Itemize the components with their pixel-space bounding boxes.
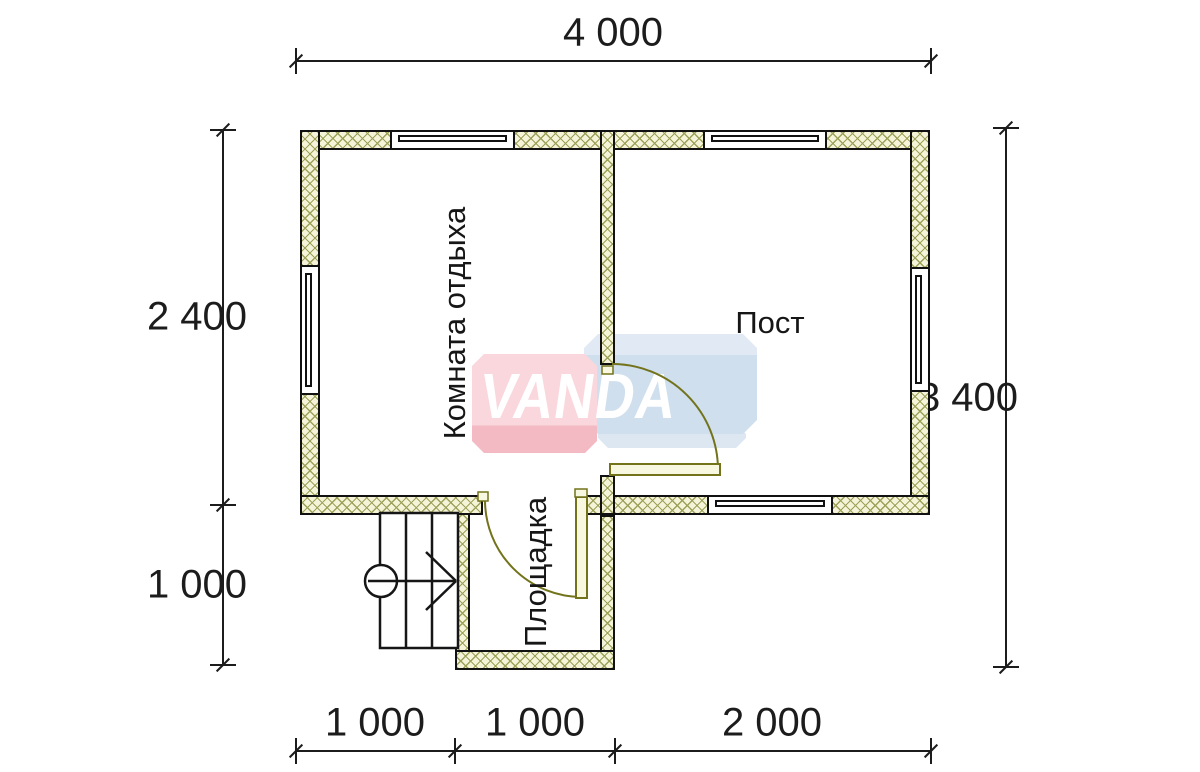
door-swing-arc-interior xyxy=(612,364,718,470)
door-frame-block xyxy=(478,492,488,501)
door-leaf-entrance xyxy=(576,497,587,598)
room-label-rest: Комната отдыха xyxy=(437,207,473,440)
room-label-post: Пост xyxy=(735,305,804,341)
room-label-porch: Площадка xyxy=(518,497,554,647)
floor-plan: VANDA 4 000 2 400 1 000 3 400 1 000 1 00… xyxy=(0,0,1200,772)
door-leaf-interior xyxy=(610,464,720,475)
door-frame-block xyxy=(602,366,613,374)
door-frame-block xyxy=(575,489,587,497)
doors-and-stairs-layer xyxy=(0,0,1200,772)
